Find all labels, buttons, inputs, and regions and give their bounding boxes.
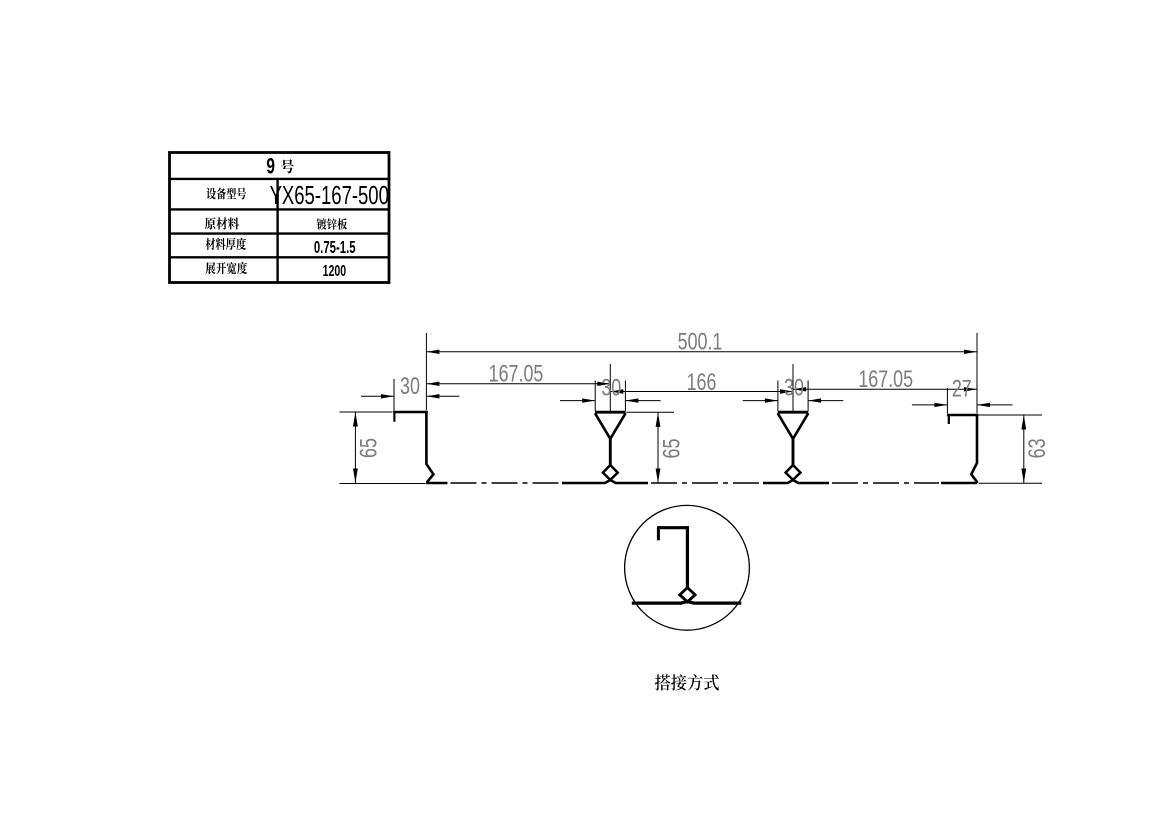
svg-text:30: 30 — [601, 374, 621, 401]
svg-text:9: 9 — [266, 155, 275, 179]
svg-text:27: 27 — [952, 375, 972, 402]
svg-text:167.05: 167.05 — [489, 360, 544, 387]
svg-text:65: 65 — [658, 438, 685, 458]
svg-text:30: 30 — [784, 374, 804, 401]
svg-text:500.1: 500.1 — [678, 328, 723, 355]
svg-text:167.05: 167.05 — [858, 365, 913, 392]
svg-text:1200: 1200 — [323, 262, 346, 280]
svg-text:65: 65 — [355, 438, 382, 458]
svg-text:30: 30 — [400, 372, 420, 399]
svg-text:63: 63 — [1023, 438, 1050, 458]
svg-text:166: 166 — [687, 368, 717, 395]
svg-text:0.75-1.5: 0.75-1.5 — [314, 239, 356, 258]
svg-text:YX65-167-500: YX65-167-500 — [270, 181, 389, 210]
